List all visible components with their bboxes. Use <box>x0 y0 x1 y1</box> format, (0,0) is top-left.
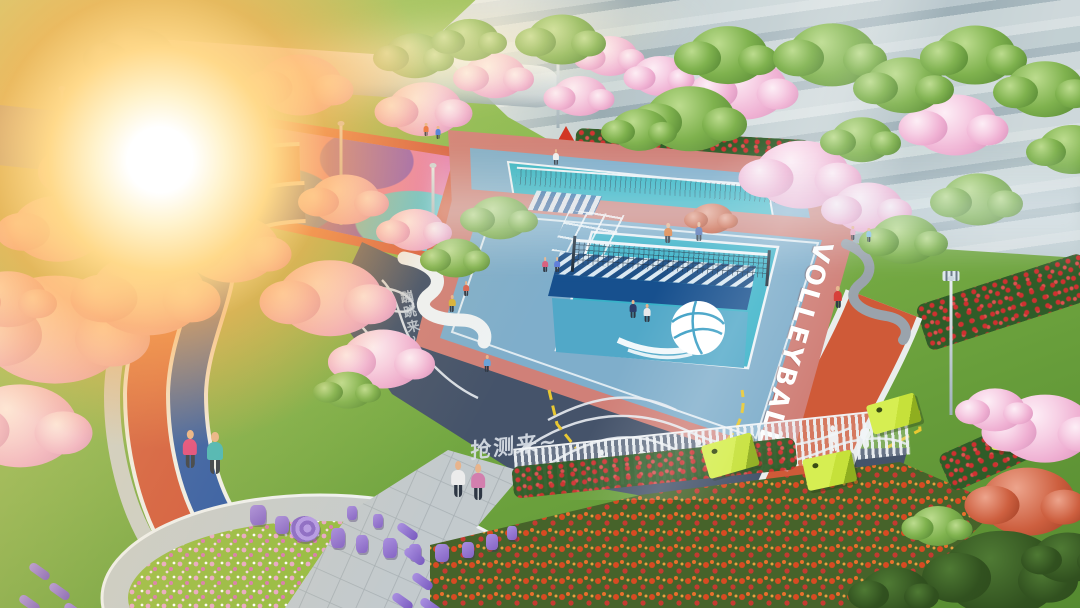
person <box>471 464 485 500</box>
person-body <box>471 473 485 488</box>
person-body <box>463 285 469 291</box>
person-legs <box>186 455 195 468</box>
person <box>664 223 672 243</box>
people-layer <box>0 0 1080 608</box>
person <box>207 432 223 474</box>
person-legs <box>474 488 482 500</box>
person <box>866 228 871 242</box>
person-body <box>449 299 456 306</box>
person <box>436 126 441 139</box>
person-body <box>436 129 441 134</box>
person <box>542 257 548 272</box>
person-head <box>697 222 700 227</box>
person <box>695 222 702 241</box>
person-body <box>695 227 702 235</box>
person-body <box>644 308 651 316</box>
person-body <box>553 153 559 160</box>
person <box>463 281 469 296</box>
person <box>449 295 456 312</box>
person-body <box>424 126 429 131</box>
person-legs <box>555 267 559 272</box>
person <box>424 123 429 136</box>
person-legs <box>666 236 671 243</box>
person-body <box>664 228 672 236</box>
person-body <box>630 304 637 312</box>
person-head <box>455 461 461 470</box>
person <box>553 149 559 165</box>
person-body <box>554 261 560 267</box>
person-head <box>475 464 481 473</box>
person-body <box>207 442 223 460</box>
person-legs <box>454 485 462 497</box>
person-legs <box>436 135 439 139</box>
person <box>644 304 651 322</box>
person-legs <box>210 460 220 474</box>
person-legs <box>631 312 635 318</box>
person-legs <box>645 316 649 322</box>
person <box>183 430 197 468</box>
person-legs <box>835 301 840 308</box>
person-head <box>211 432 218 442</box>
person <box>850 226 855 240</box>
person-body <box>542 261 548 267</box>
person <box>451 461 465 497</box>
person-body <box>451 470 465 485</box>
person-body <box>183 439 197 455</box>
person <box>630 300 637 318</box>
person-legs <box>543 267 547 272</box>
person-legs <box>424 132 427 136</box>
person-legs <box>464 291 468 296</box>
person <box>554 257 560 272</box>
person <box>834 286 842 308</box>
person-body <box>834 291 842 300</box>
person-legs <box>450 306 454 312</box>
person-legs <box>697 235 701 241</box>
person-legs <box>485 366 489 372</box>
person-legs <box>554 160 558 165</box>
person <box>484 355 491 372</box>
person-legs <box>851 235 854 240</box>
park-rendering: VOLLEYBALL 抢测来~ 蹦跳来~ <box>0 0 1080 608</box>
person-legs <box>867 237 870 242</box>
person-body <box>484 359 491 366</box>
person-head <box>187 430 194 439</box>
